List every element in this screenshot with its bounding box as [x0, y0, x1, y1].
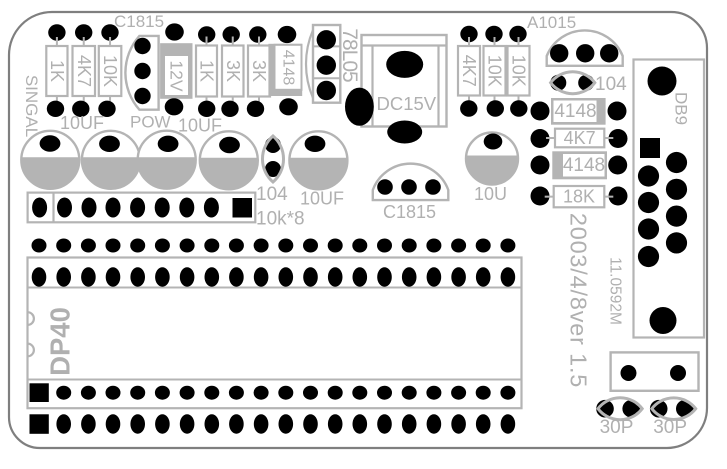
svg-text:10UF: 10UF [300, 189, 344, 209]
svg-text:78L05: 78L05 [338, 28, 361, 82]
svg-text:10UF: 10UF [178, 116, 222, 136]
svg-text:4K7: 4K7 [74, 55, 94, 87]
svg-text:104: 104 [256, 184, 288, 205]
svg-text:4148: 4148 [563, 155, 605, 176]
svg-text:4148: 4148 [280, 50, 297, 86]
svg-text:12V: 12V [167, 60, 187, 91]
svg-text:2003/4/8ver 1.5: 2003/4/8ver 1.5 [566, 213, 592, 388]
svg-text:4K7: 4K7 [564, 128, 596, 148]
svg-text:DP40: DP40 [45, 307, 76, 376]
svg-text:C1815: C1815 [383, 202, 436, 222]
svg-text:10K: 10K [485, 55, 505, 87]
svg-text:18K: 18K [563, 187, 595, 207]
svg-text:10UF: 10UF [60, 113, 104, 133]
svg-text:DB9: DB9 [672, 92, 691, 125]
svg-text:A1015: A1015 [527, 13, 576, 32]
svg-text:4148: 4148 [554, 101, 596, 122]
svg-text:C1815: C1815 [114, 12, 164, 31]
svg-text:10K: 10K [509, 55, 529, 87]
svg-text:30P: 30P [653, 417, 687, 438]
svg-text:11.0592M: 11.0592M [607, 257, 624, 325]
svg-text:1K: 1K [197, 60, 217, 82]
svg-text:POW: POW [130, 113, 171, 132]
svg-text:30P: 30P [600, 417, 634, 438]
svg-text:1K: 1K [47, 60, 67, 82]
svg-text:3K: 3K [223, 60, 243, 82]
svg-text:DC15V: DC15V [377, 93, 437, 114]
svg-text:10k*8: 10k*8 [256, 209, 305, 230]
svg-text:SINGAL: SINGAL [22, 75, 41, 137]
svg-text:3K: 3K [249, 60, 269, 82]
svg-text:4K7: 4K7 [459, 55, 479, 87]
svg-text:10U: 10U [474, 184, 507, 204]
svg-text:104: 104 [595, 74, 627, 95]
svg-text:10K: 10K [100, 55, 120, 87]
